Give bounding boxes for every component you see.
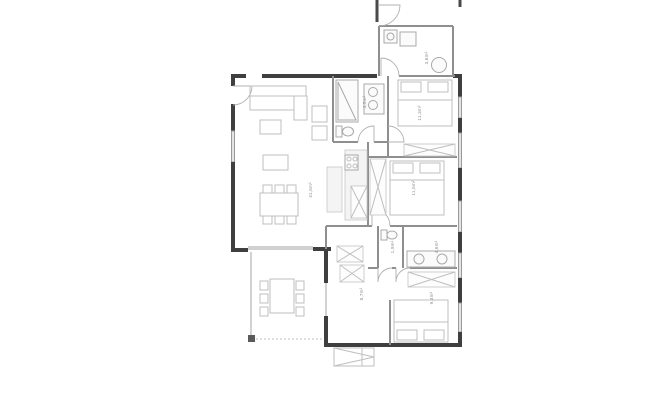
entrance-door-arc [379,5,400,26]
dining-chair-3 [287,185,296,193]
annex-door-arc [381,58,399,76]
terrace-post [248,335,255,342]
bath1-door-arc [358,126,374,142]
room-label-bath1: 4,5m² [362,95,367,108]
room-label-hall: 8,7m² [359,287,364,300]
bed1-pillow-2 [428,82,448,92]
terrace-chair-6 [296,307,304,316]
window-right-4 [459,253,462,278]
terrace-chair-1 [260,281,268,290]
hall-closets [337,246,364,282]
bath1-basin-1 [369,88,378,97]
toilet-tank [336,126,342,137]
armchair-1 [312,106,327,122]
annex-boiler [432,58,447,73]
bed3-pillow-2 [424,330,444,340]
sofa-seat [250,96,294,110]
entrance-annex [379,5,455,76]
wc-toilet-tank [381,230,387,240]
bedroom-bottom-furniture [394,272,455,342]
toilet-bowl [343,127,354,136]
window-right-5 [459,303,462,332]
window-left [232,131,235,162]
room-label-annex: 3,6m² [424,51,429,64]
terrace-chair-4 [296,281,304,290]
kitchen [327,150,367,220]
bed1 [398,80,452,126]
bed3 [394,300,448,342]
room-label-bed2: 11,5m² [411,180,416,195]
dining-chair-2 [275,185,284,193]
dining-chair-6 [287,216,296,224]
wc-door-arc [378,268,392,282]
annex-washbasin-bowl [387,33,394,40]
stair-arrow [334,348,374,366]
terrace-table [270,279,294,313]
bath1-basin-2 [369,101,378,110]
bed3-pillow-1 [397,330,417,340]
room-label-bed3: 9,4m² [429,291,434,304]
room-label-wc: 1,9m² [390,240,395,253]
sofa-back [250,86,306,96]
bathroom-top-fixtures [336,80,384,137]
window-right-3 [459,201,462,232]
window-right-1 [459,97,462,118]
terrace-chair-3 [260,307,268,316]
room-label-bed1: 11,3m² [417,105,422,120]
dining-chair-1 [263,185,272,193]
terrace-chair-5 [296,294,304,303]
bed2 [390,161,444,215]
bath2-basin-1 [414,254,424,264]
dining-chair-5 [275,216,284,224]
floor-plan-canvas: 41,5m² 4,5m² 11,3m² 3,6m² 11,5m² 1,9m² 4… [0,0,660,410]
bed2-pillow-1 [393,163,413,173]
window-right-2 [459,133,462,168]
bedroom-top-right-furniture [398,80,455,156]
bed1-pillow-1 [401,82,421,92]
wc-toilet-bowl [387,231,397,239]
coffee-table [260,120,281,134]
living-room-furniture [250,86,327,224]
dining-table [260,193,298,216]
kitchen-island [327,167,342,212]
exterior-stair [334,348,374,366]
floor-plan-drawing: 41,5m² 4,5m² 11,3m² 3,6m² 11,5m² 1,9m² 4… [0,0,660,410]
bedroom-middle-right-furniture [370,159,444,215]
bed1-door-arc [388,126,404,142]
room-label-bath2: 4,6m² [434,240,439,253]
bath2-basin-2 [437,254,447,264]
armchair-2 [312,126,327,140]
sofa-chaise [294,96,307,120]
bed2-pillow-2 [420,163,440,173]
tv-sideboard [263,155,288,170]
dining-chair-4 [263,216,272,224]
living-terrace-door-arc [233,86,252,105]
terrace-chair-2 [260,294,268,303]
terrace [248,252,322,342]
stair-outline [334,348,374,366]
room-label-living: 41,5m² [308,182,313,198]
annex-cabinet [400,32,416,46]
